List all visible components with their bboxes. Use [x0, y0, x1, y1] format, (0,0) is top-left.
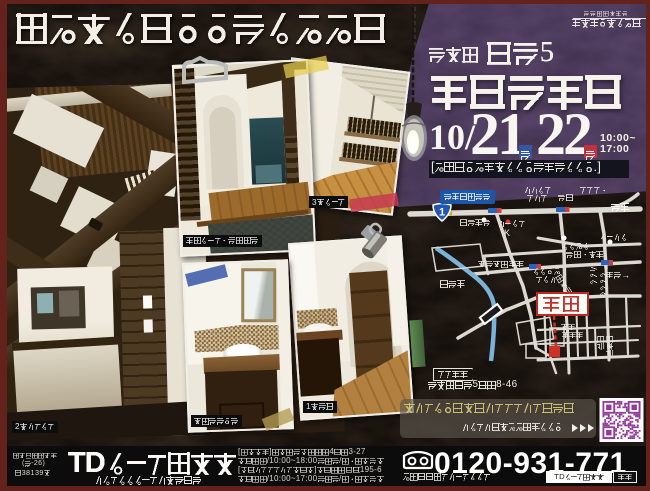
svg-text:1: 1: [439, 207, 445, 219]
